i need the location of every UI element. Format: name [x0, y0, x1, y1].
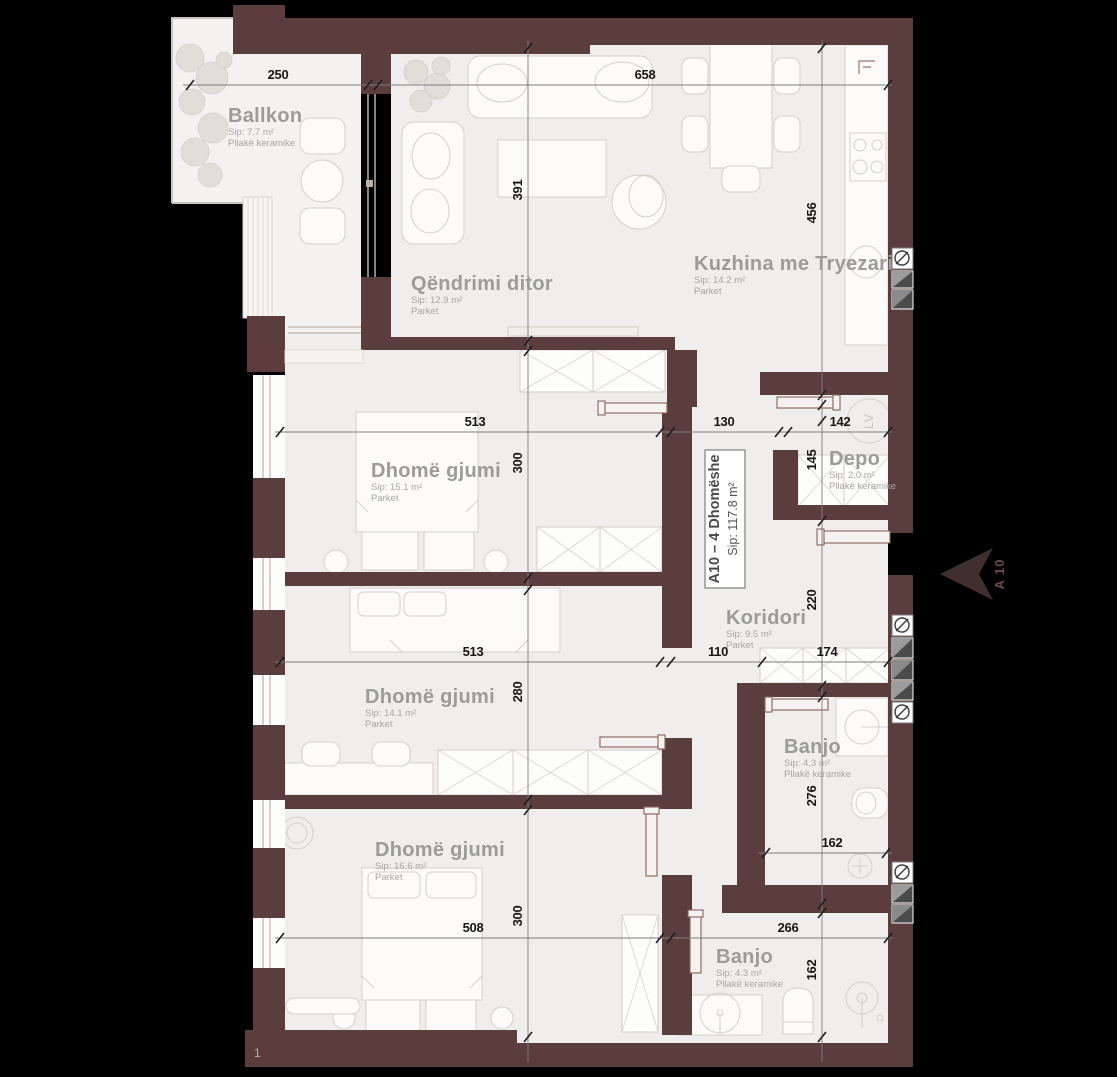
svg-text:Parket: Parket: [694, 286, 722, 297]
window-left-4: [253, 800, 285, 848]
floor-plan-page: LV: [0, 0, 1117, 1077]
svg-text:Pllakë keramike: Pllakë keramike: [829, 481, 896, 492]
unit-label-box: A10 – 4 Dhomëshe Sip: 117.8 m²: [705, 450, 745, 588]
washer-label: LV: [862, 413, 876, 429]
dim-276: 276: [804, 786, 819, 807]
vent-fan-icon: [892, 615, 913, 636]
svg-text:Parket: Parket: [365, 719, 393, 730]
svg-text:Banjo: Banjo: [716, 946, 773, 968]
door-bedroom3: [644, 807, 659, 876]
window-left-1: [253, 375, 285, 478]
svg-text:Sip: 15.1 m²: Sip: 15.1 m²: [371, 482, 422, 493]
dim-162b: 162: [804, 960, 819, 981]
svg-text:Sip: 9.5 m²: Sip: 9.5 m²: [726, 629, 772, 640]
dim-300b: 300: [510, 906, 525, 927]
svg-text:Depo: Depo: [829, 448, 880, 470]
svg-text:Sip: 12.9 m²: Sip: 12.9 m²: [411, 295, 462, 306]
window-left-5: [253, 918, 285, 968]
bedroom2-wardrobe: [438, 750, 662, 795]
door-bath1: [765, 697, 828, 712]
svg-text:Parket: Parket: [371, 493, 399, 504]
svg-text:Kuzhina me Tryezari: Kuzhina me Tryezari: [694, 253, 893, 275]
svg-text:Dhomë gjumi: Dhomë gjumi: [365, 686, 495, 708]
svg-text:Pllakë keramike: Pllakë keramike: [716, 979, 783, 990]
dim-300a: 300: [510, 453, 525, 474]
dim-658: 658: [635, 67, 656, 82]
svg-text:Sip: 7.7 m²: Sip: 7.7 m²: [228, 127, 274, 138]
dim-145: 145: [804, 450, 819, 471]
bedroom3-wardrobe: [622, 915, 658, 1032]
svg-text:Parket: Parket: [726, 640, 754, 651]
dim-250: 250: [268, 67, 289, 82]
window-left-2: [253, 558, 285, 610]
svg-text:Sip: 16.6 m²: Sip: 16.6 m²: [375, 861, 426, 872]
dim-142: 142: [830, 414, 851, 429]
door-bedroom2: [600, 735, 665, 749]
shaft-hatch-icon: [892, 905, 913, 923]
door-depo: [777, 395, 840, 410]
svg-text:Sip: 2.0 m²: Sip: 2.0 m²: [829, 470, 875, 481]
vent-fan-icon: [892, 702, 913, 723]
window-left-3: [253, 675, 285, 725]
svg-text:Parket: Parket: [411, 306, 439, 317]
balcony-furniture: [300, 118, 345, 244]
dim-162a: 162: [822, 835, 843, 850]
dim-220: 220: [804, 590, 819, 611]
entry-arrow-icon: [940, 548, 993, 600]
unit-title: A10 – 4 Dhomëshe: [707, 455, 723, 584]
shaft-hatch-icon: [892, 682, 913, 700]
dim-456: 456: [804, 203, 819, 224]
dim-513b: 513: [463, 644, 484, 659]
svg-text:Parket: Parket: [375, 872, 403, 883]
svg-text:Ballkon: Ballkon: [228, 105, 302, 127]
shaft-hatch-icon: [892, 271, 913, 288]
grid-label: 1: [254, 1046, 261, 1060]
svg-text:Pllakë keramike: Pllakë keramike: [228, 138, 295, 149]
shaft-hatch-icon: [892, 885, 913, 903]
door-bedroom1: [598, 401, 667, 415]
svg-text:Dhomë gjumi: Dhomë gjumi: [375, 839, 505, 861]
entry-marker-label: A 10: [992, 559, 1007, 590]
svg-text:Pllakë keramike: Pllakë keramike: [784, 769, 851, 780]
svg-text:Koridori: Koridori: [726, 607, 806, 629]
dim-508: 508: [463, 920, 484, 935]
svg-text:Sip: 4.3 m²: Sip: 4.3 m²: [716, 968, 762, 979]
dim-391: 391: [510, 180, 525, 201]
vent-fan-icon: [892, 248, 913, 269]
balcony-sliding-door: [366, 94, 375, 277]
dim-266: 266: [778, 920, 799, 935]
shaft-hatch-icon: [892, 290, 913, 309]
dim-130: 130: [714, 414, 735, 429]
shaft-hatch-icon: [892, 638, 913, 658]
svg-text:Banjo: Banjo: [784, 736, 841, 758]
svg-text:Sip: 4.3 m²: Sip: 4.3 m²: [784, 758, 830, 769]
dim-174: 174: [817, 644, 839, 659]
vent-fan-icon: [892, 862, 913, 883]
shaft-hatch-icon: [892, 660, 913, 680]
dim-513a: 513: [465, 414, 486, 429]
dim-280: 280: [510, 682, 525, 703]
door-entry: [817, 529, 890, 545]
unit-area: Sip: 117.8 m²: [726, 482, 740, 555]
door-bath2: [688, 910, 703, 973]
svg-text:Dhomë gjumi: Dhomë gjumi: [371, 460, 501, 482]
floor-plan-drawing: LV: [0, 0, 1117, 1077]
svg-text:Sip: 14.1 m²: Sip: 14.1 m²: [365, 708, 416, 719]
svg-text:Sip: 14.2 m²: Sip: 14.2 m²: [694, 275, 745, 286]
svg-text:Qëndrimi ditor: Qëndrimi ditor: [411, 273, 553, 295]
entry-marker: A 10: [940, 548, 1007, 600]
